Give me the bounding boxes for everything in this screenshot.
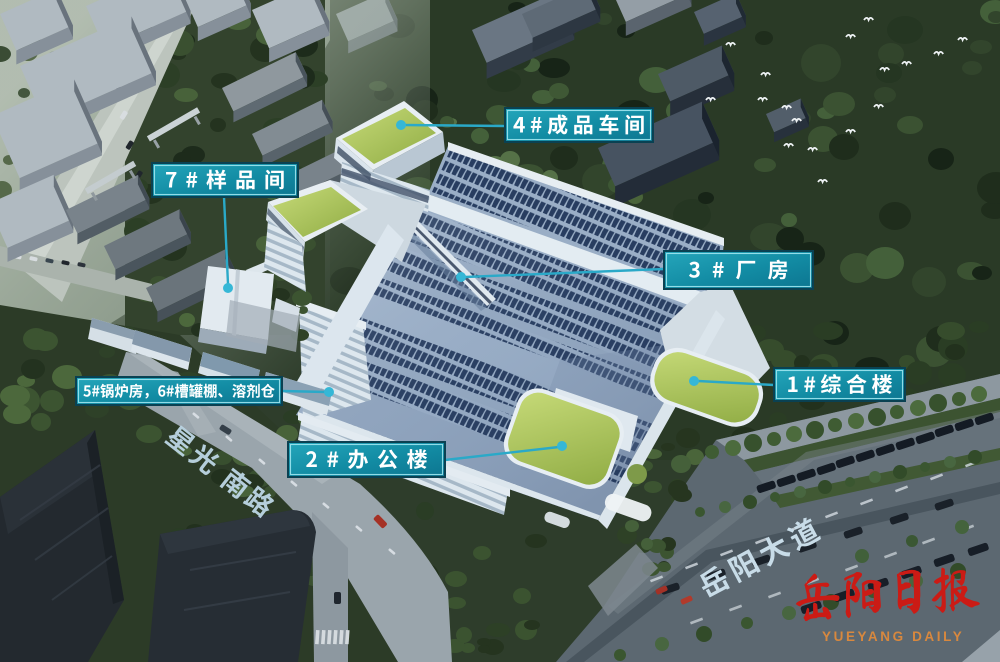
svg-text:YUEYANG DAILY: YUEYANG DAILY [822, 629, 964, 644]
svg-text:5#锅炉房，6#槽罐棚、溶剂仓: 5#锅炉房，6#槽罐棚、溶剂仓 [83, 380, 275, 401]
svg-text:岳阳日报: 岳阳日报 [790, 561, 982, 624]
svg-text:4#成品车间: 4#成品车间 [513, 110, 645, 140]
